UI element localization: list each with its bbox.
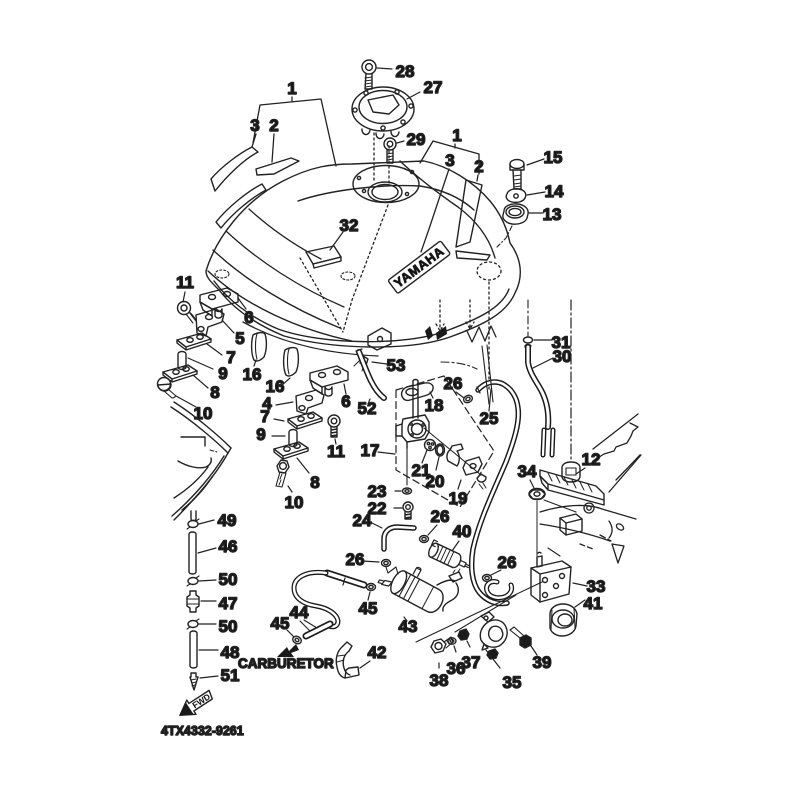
svg-text:20: 20 (426, 472, 445, 491)
svg-text:26: 26 (444, 374, 463, 393)
svg-text:9: 9 (218, 364, 227, 383)
svg-text:37: 37 (462, 653, 481, 672)
svg-text:10: 10 (285, 493, 304, 512)
svg-text:51: 51 (221, 666, 240, 685)
svg-text:6: 6 (341, 392, 350, 411)
svg-text:27: 27 (424, 78, 443, 97)
svg-text:12: 12 (582, 450, 601, 469)
svg-text:7: 7 (260, 407, 269, 426)
svg-text:13: 13 (543, 205, 562, 224)
svg-text:34: 34 (518, 462, 537, 481)
svg-text:43: 43 (399, 617, 418, 636)
svg-text:33: 33 (587, 577, 606, 596)
svg-text:26: 26 (498, 553, 517, 572)
svg-text:28: 28 (396, 62, 415, 81)
svg-text:15: 15 (544, 148, 563, 167)
svg-text:10: 10 (194, 404, 213, 423)
svg-text:26: 26 (431, 507, 450, 526)
svg-text:8: 8 (210, 383, 219, 402)
svg-text:30: 30 (553, 347, 572, 366)
svg-text:50: 50 (219, 570, 238, 589)
svg-text:40: 40 (453, 522, 472, 541)
svg-text:3: 3 (250, 116, 259, 135)
svg-text:1: 1 (452, 126, 461, 145)
svg-text:24: 24 (353, 511, 372, 530)
svg-text:3: 3 (445, 151, 454, 170)
svg-text:16: 16 (243, 365, 262, 384)
svg-text:29: 29 (407, 130, 426, 149)
svg-text:48: 48 (221, 643, 240, 662)
svg-text:26: 26 (346, 550, 365, 569)
svg-text:46: 46 (219, 537, 238, 556)
svg-text:14: 14 (545, 182, 564, 201)
svg-text:2: 2 (269, 116, 278, 135)
svg-text:47: 47 (219, 594, 238, 613)
svg-text:44: 44 (290, 603, 309, 622)
svg-text:CARBURETOR: CARBURETOR (238, 656, 334, 671)
svg-text:4TX4332-9261: 4TX4332-9261 (161, 724, 244, 738)
svg-text:9: 9 (256, 425, 265, 444)
svg-text:18: 18 (425, 396, 444, 415)
svg-text:5: 5 (235, 329, 244, 348)
svg-text:1: 1 (287, 79, 296, 98)
svg-text:6: 6 (244, 308, 253, 327)
svg-text:11: 11 (327, 442, 345, 461)
svg-text:39: 39 (533, 653, 552, 672)
svg-text:11: 11 (176, 273, 194, 292)
svg-text:19: 19 (449, 489, 468, 508)
svg-text:49: 49 (218, 511, 237, 530)
svg-text:42: 42 (368, 643, 387, 662)
svg-text:35: 35 (503, 673, 522, 692)
svg-text:50: 50 (219, 617, 238, 636)
svg-text:2: 2 (474, 157, 483, 176)
svg-text:17: 17 (361, 441, 380, 460)
svg-text:8: 8 (310, 473, 319, 492)
svg-text:32: 32 (340, 216, 359, 235)
svg-text:52: 52 (358, 399, 377, 418)
svg-text:25: 25 (480, 409, 499, 428)
svg-text:41: 41 (584, 594, 603, 613)
svg-text:53: 53 (387, 356, 406, 375)
svg-text:45: 45 (359, 599, 378, 618)
